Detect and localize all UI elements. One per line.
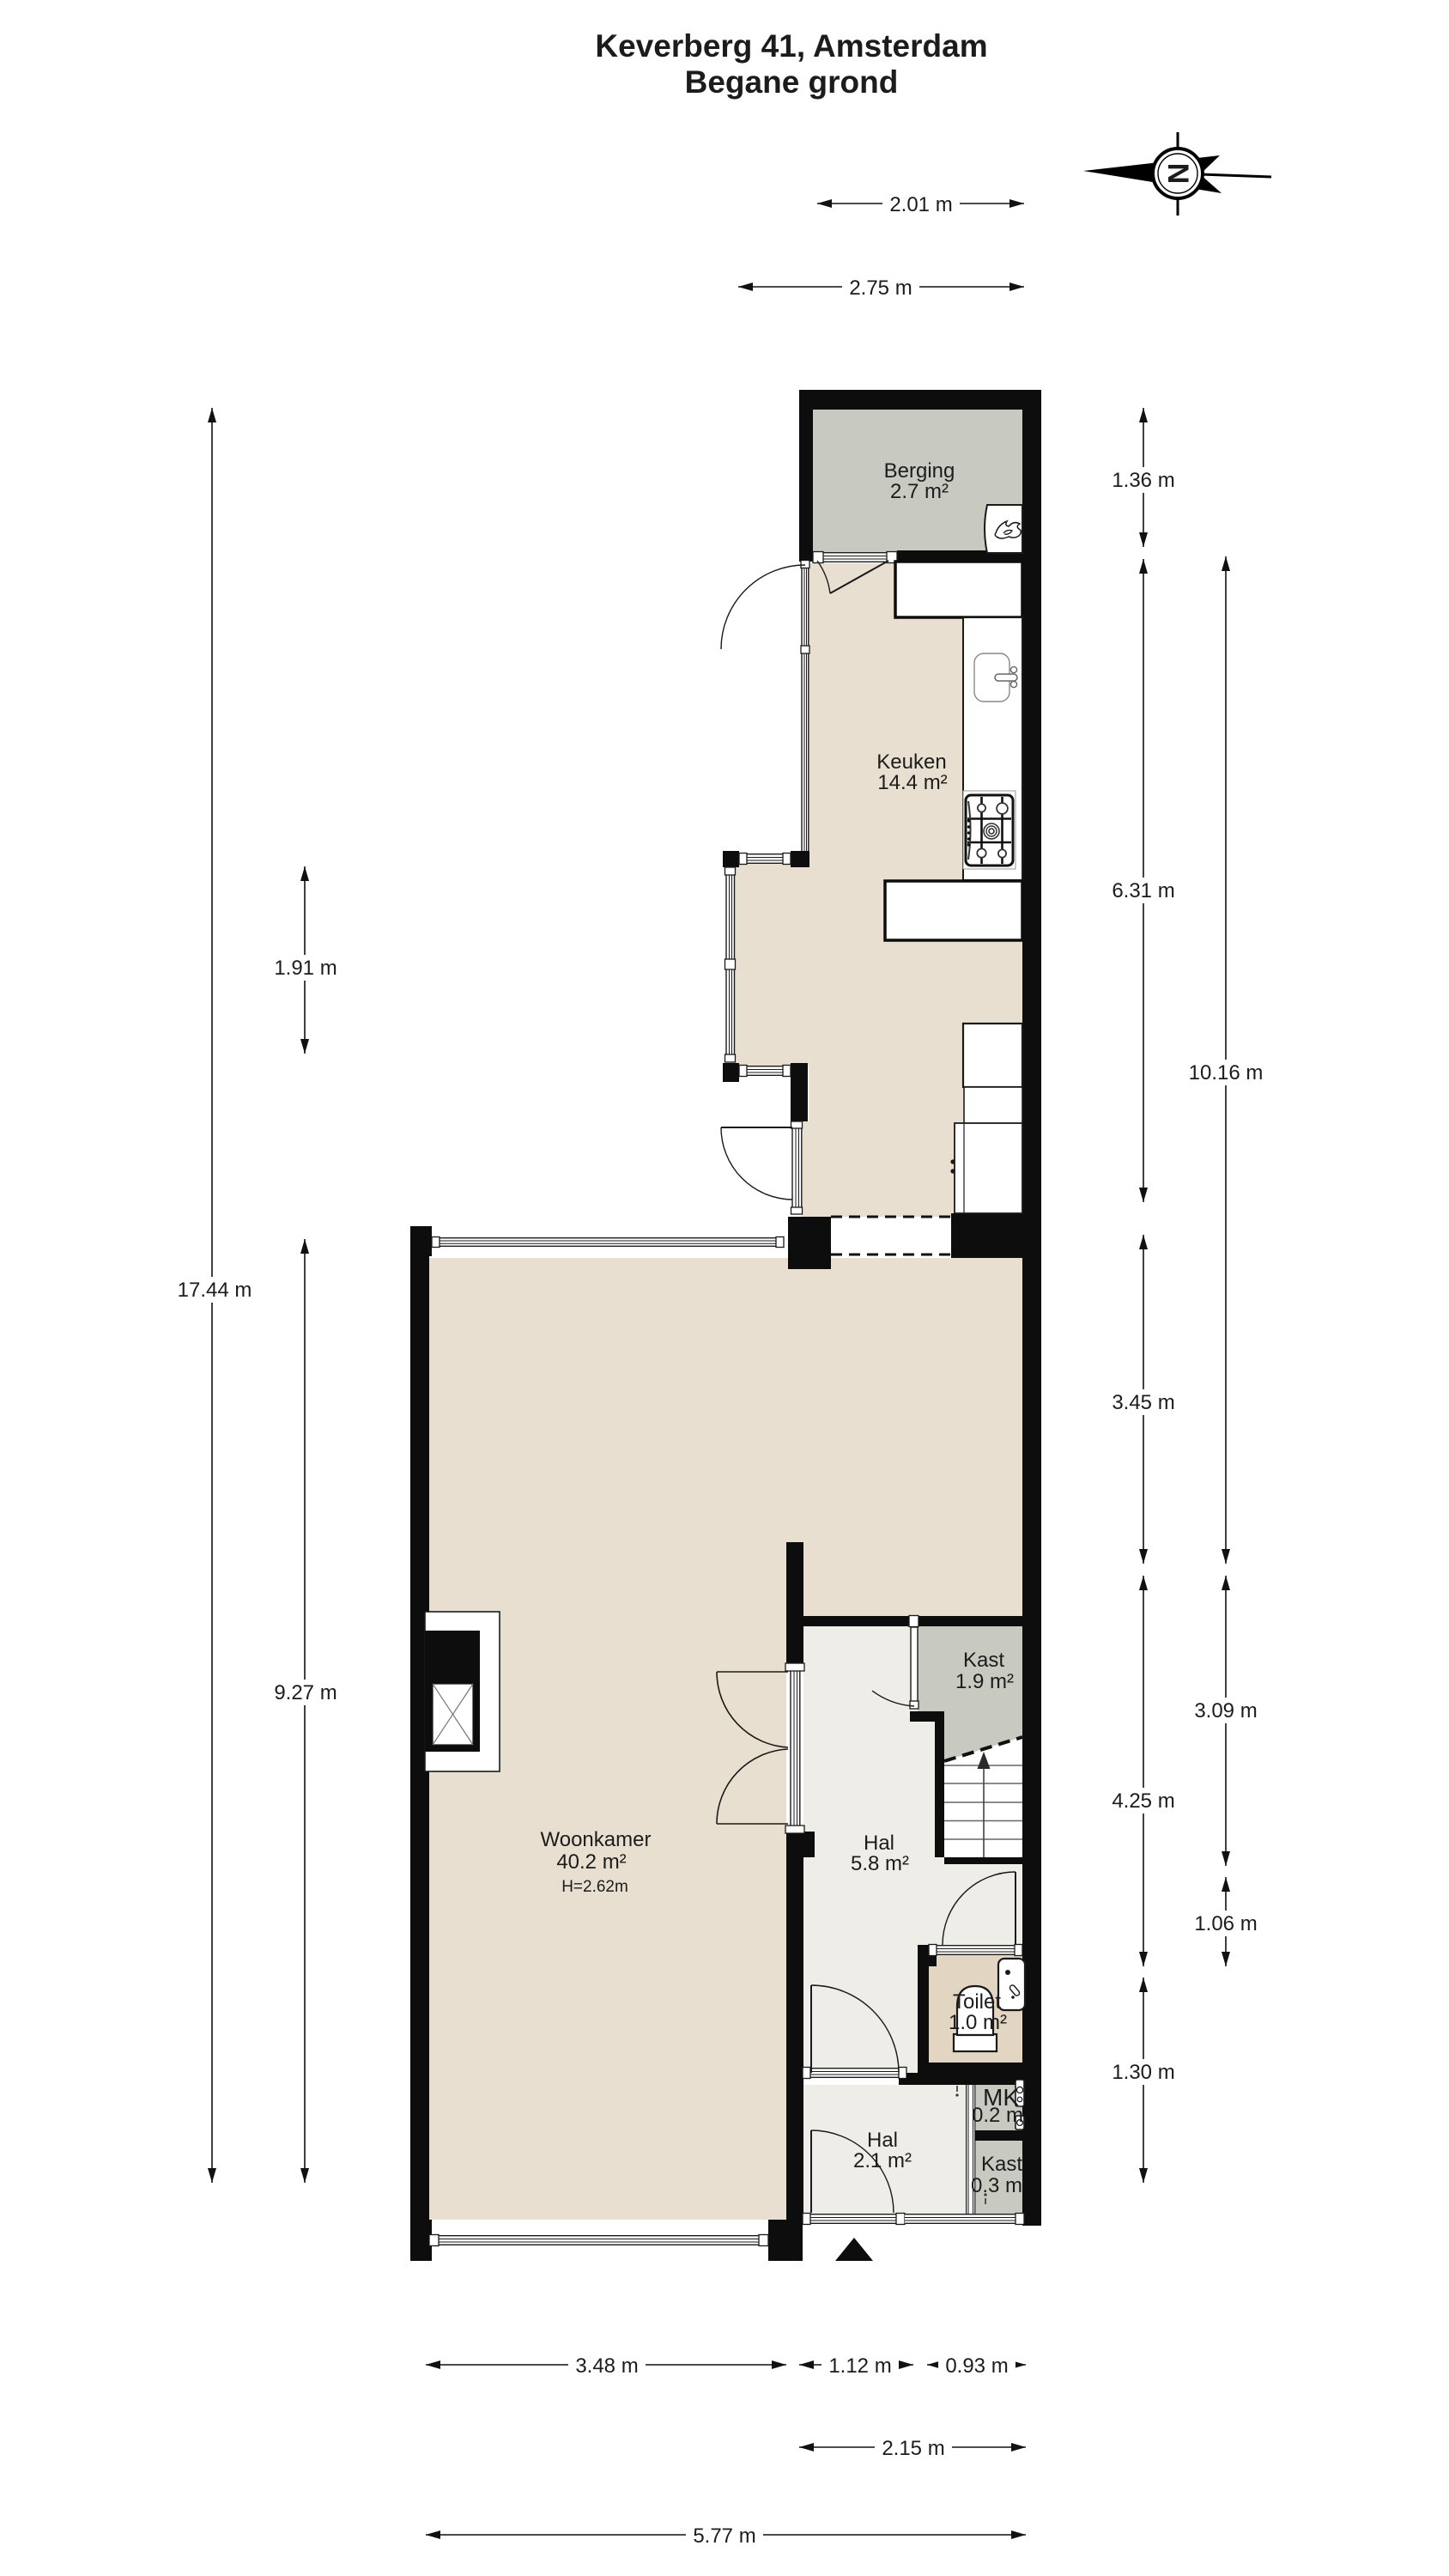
svg-text:1.0 m²: 1.0 m² <box>949 2011 1007 2034</box>
svg-text:N: N <box>1161 163 1194 185</box>
svg-text:3.45 m: 3.45 m <box>1112 1391 1174 1414</box>
svg-text:5.8 m²: 5.8 m² <box>851 1852 909 1875</box>
svg-text:Kast: Kast <box>981 2153 1022 2176</box>
svg-text:1.30 m: 1.30 m <box>1112 2061 1174 2084</box>
svg-text:Keuken: Keuken <box>876 750 946 774</box>
svg-text:40.2 m²: 40.2 m² <box>556 1850 626 1874</box>
svg-text:Kast: Kast <box>963 1649 1004 1672</box>
svg-text:14.4 m²: 14.4 m² <box>877 771 947 794</box>
svg-text:1.06 m: 1.06 m <box>1194 1912 1257 1935</box>
svg-text:5.77 m: 5.77 m <box>693 2524 755 2548</box>
svg-text:1.91 m: 1.91 m <box>274 957 336 980</box>
svg-text:4.25 m: 4.25 m <box>1112 1789 1174 1813</box>
svg-text:Toilet: Toilet <box>953 1990 1001 2014</box>
svg-text:Begane grond: Begane grond <box>685 64 899 100</box>
svg-text:2.75 m: 2.75 m <box>849 276 912 300</box>
svg-text:Hal: Hal <box>867 2129 898 2152</box>
svg-text:10.16 m: 10.16 m <box>1189 1061 1264 1084</box>
svg-text:2.01 m: 2.01 m <box>889 193 952 216</box>
svg-text:2.15 m: 2.15 m <box>882 2437 944 2460</box>
svg-text:Woonkamer: Woonkamer <box>541 1828 652 1851</box>
svg-text:9.27 m: 9.27 m <box>274 1681 336 1704</box>
svg-text:0.2 m: 0.2 m <box>972 2104 1023 2127</box>
svg-text:6.31 m: 6.31 m <box>1112 879 1174 902</box>
svg-text:17.44 m: 17.44 m <box>178 1279 252 1302</box>
svg-text:1.12 m: 1.12 m <box>828 2354 891 2378</box>
svg-text:1.36 m: 1.36 m <box>1112 469 1174 492</box>
svg-text:2.7 m²: 2.7 m² <box>890 480 949 503</box>
svg-text:0.93 m: 0.93 m <box>945 2354 1008 2378</box>
svg-text:2.1 m²: 2.1 m² <box>853 2149 912 2172</box>
svg-text:Keverberg 41, Amsterdam: Keverberg 41, Amsterdam <box>595 28 987 64</box>
svg-text:1.9 m²: 1.9 m² <box>955 1670 1014 1693</box>
svg-text:3.09 m: 3.09 m <box>1194 1699 1257 1722</box>
svg-text:3.48 m: 3.48 m <box>575 2354 638 2378</box>
svg-text:0.3 m: 0.3 m <box>971 2174 1022 2197</box>
svg-text:H=2.62m: H=2.62m <box>561 1878 628 1896</box>
svg-text:Berging: Berging <box>884 459 955 483</box>
svg-text:Hal: Hal <box>864 1832 894 1855</box>
